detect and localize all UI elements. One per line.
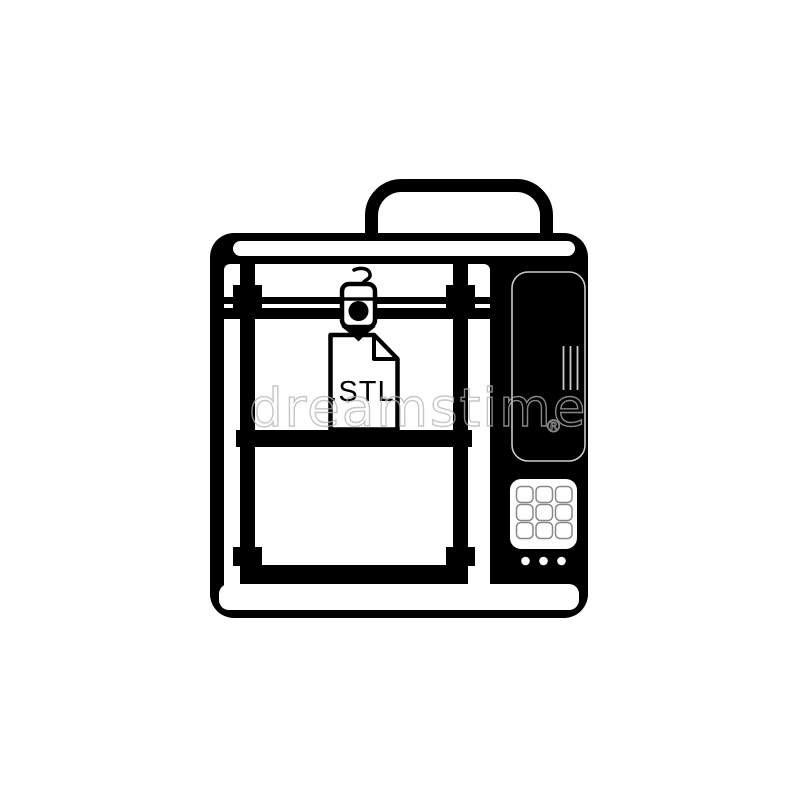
rail-bracket-right — [446, 285, 475, 312]
keypad-keys — [517, 487, 573, 539]
rail-foot-left — [233, 547, 262, 566]
keypad-key — [536, 505, 553, 521]
keypad-key — [536, 523, 553, 539]
indicator-dot — [521, 557, 530, 566]
rail-bracket-left — [233, 285, 262, 312]
keypad-key — [517, 505, 534, 521]
keypad-key — [536, 487, 553, 503]
stock-image-canvas: .STL — [0, 0, 800, 800]
rail-foot-right — [446, 547, 475, 566]
top-accent-strip — [233, 241, 575, 256]
indicator-dot — [539, 557, 548, 566]
base-strip — [219, 584, 579, 610]
indicator-dot — [557, 557, 566, 566]
indicator-dots — [521, 557, 566, 566]
keypad-key — [556, 523, 573, 539]
watermark-registered-mark: ® — [545, 417, 562, 437]
keypad-key — [556, 505, 573, 521]
watermark-text: dreamstime — [249, 378, 587, 439]
keypad-key — [517, 487, 534, 503]
keypad-key — [556, 487, 573, 503]
printer-stl-illustration: .STL — [0, 0, 800, 800]
watermark: dreamstime ® — [249, 378, 587, 439]
print-head-gear-icon — [349, 301, 369, 321]
keypad-key — [517, 523, 534, 539]
